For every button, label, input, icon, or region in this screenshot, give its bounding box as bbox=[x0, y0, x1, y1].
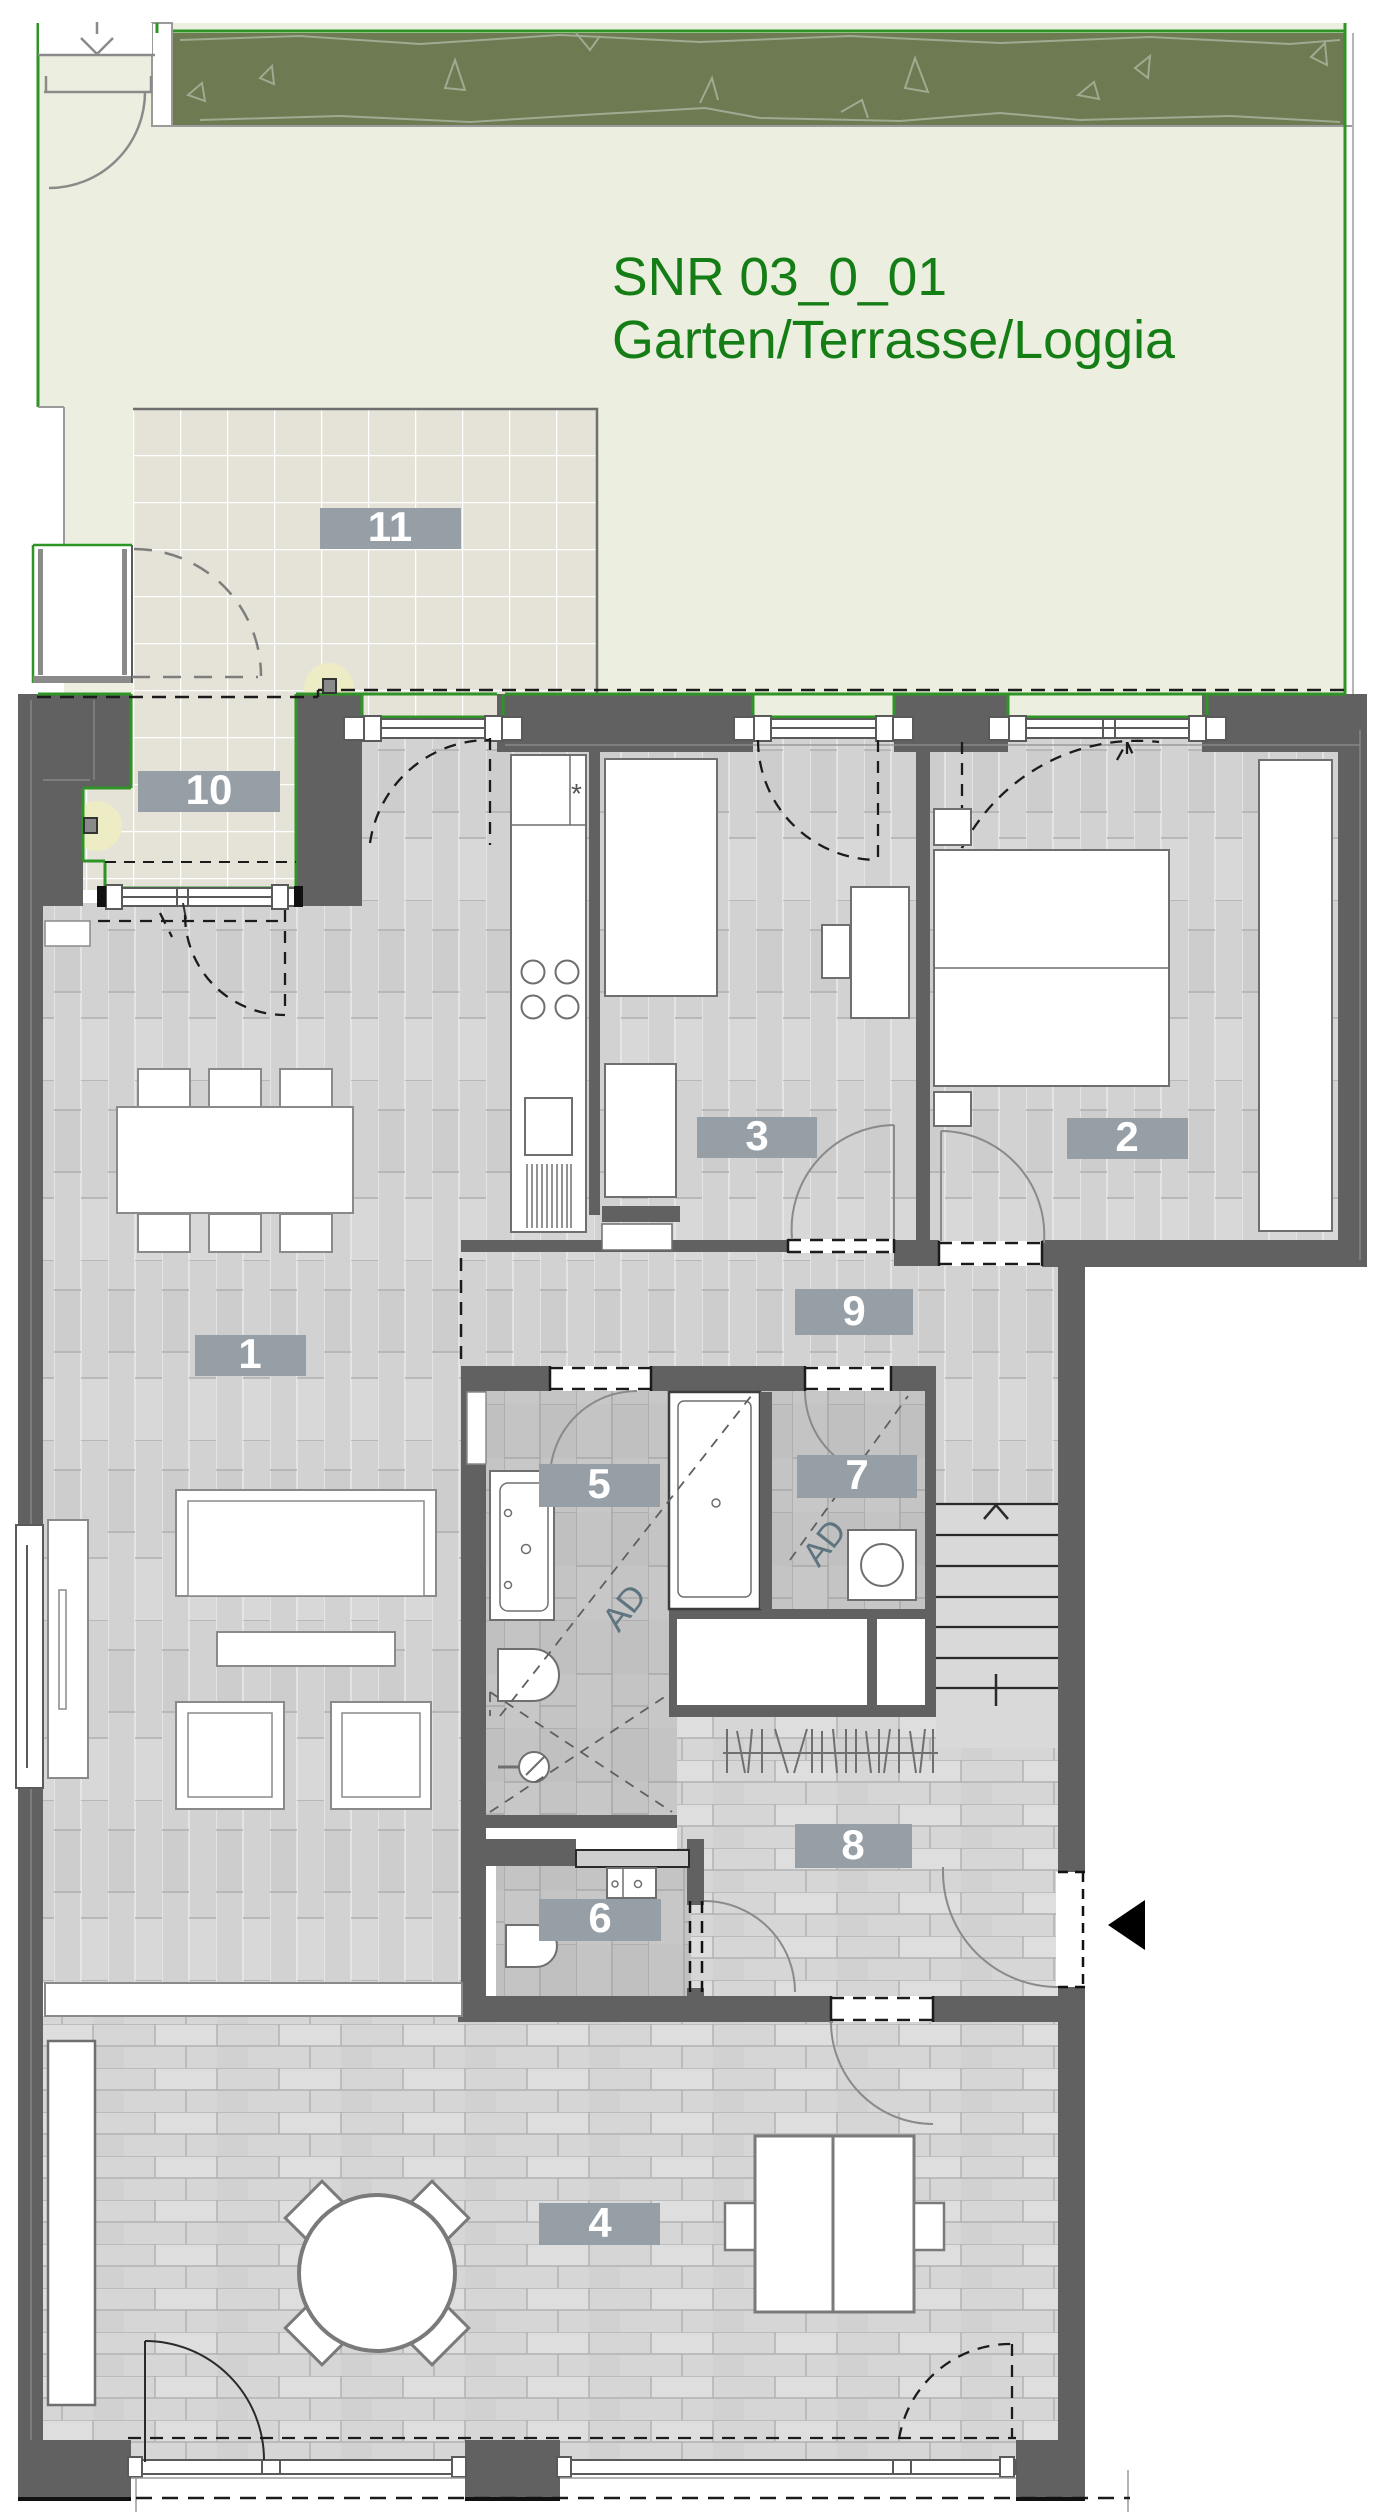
svg-text:3: 3 bbox=[745, 1112, 768, 1159]
svg-text:10: 10 bbox=[186, 766, 233, 813]
svg-text:1: 1 bbox=[238, 1330, 261, 1377]
svg-text:5: 5 bbox=[587, 1460, 610, 1507]
svg-text:9: 9 bbox=[842, 1287, 865, 1334]
svg-text:*: * bbox=[571, 778, 582, 809]
svg-text:7: 7 bbox=[845, 1451, 868, 1498]
svg-text:8: 8 bbox=[841, 1821, 864, 1868]
svg-text:2: 2 bbox=[1115, 1113, 1138, 1160]
svg-text:11: 11 bbox=[368, 503, 412, 550]
svg-text:4: 4 bbox=[588, 2199, 612, 2246]
svg-text:Garten/Terrasse/Loggia: Garten/Terrasse/Loggia bbox=[612, 310, 1176, 370]
svg-text:SNR 03_0_01: SNR 03_0_01 bbox=[612, 247, 947, 307]
svg-text:6: 6 bbox=[588, 1894, 611, 1941]
